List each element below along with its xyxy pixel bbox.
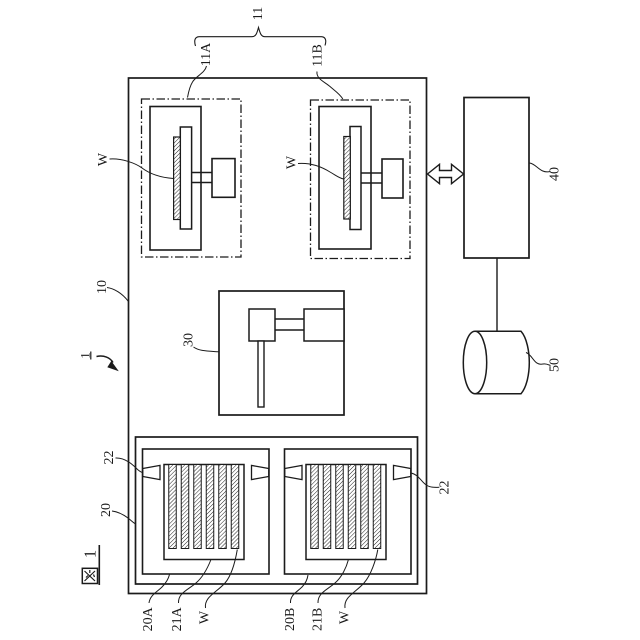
svg-text:11B: 11B bbox=[311, 44, 326, 67]
svg-text:W: W bbox=[198, 610, 213, 624]
svg-text:21B: 21B bbox=[311, 608, 326, 631]
svg-text:11: 11 bbox=[251, 7, 266, 20]
svg-text:21A: 21A bbox=[170, 606, 185, 631]
svg-text:1: 1 bbox=[81, 550, 100, 558]
svg-text:10: 10 bbox=[95, 280, 110, 294]
svg-text:20: 20 bbox=[99, 503, 114, 517]
svg-text:W: W bbox=[96, 152, 111, 166]
svg-text:11A: 11A bbox=[199, 42, 214, 66]
svg-text:40: 40 bbox=[548, 167, 563, 181]
svg-text:22: 22 bbox=[102, 451, 117, 465]
svg-text:30: 30 bbox=[182, 333, 197, 347]
svg-text:20A: 20A bbox=[141, 606, 156, 631]
svg-text:22: 22 bbox=[438, 481, 453, 495]
svg-text:W: W bbox=[338, 610, 353, 624]
svg-text:20B: 20B bbox=[283, 608, 298, 631]
svg-text:W: W bbox=[285, 155, 300, 169]
